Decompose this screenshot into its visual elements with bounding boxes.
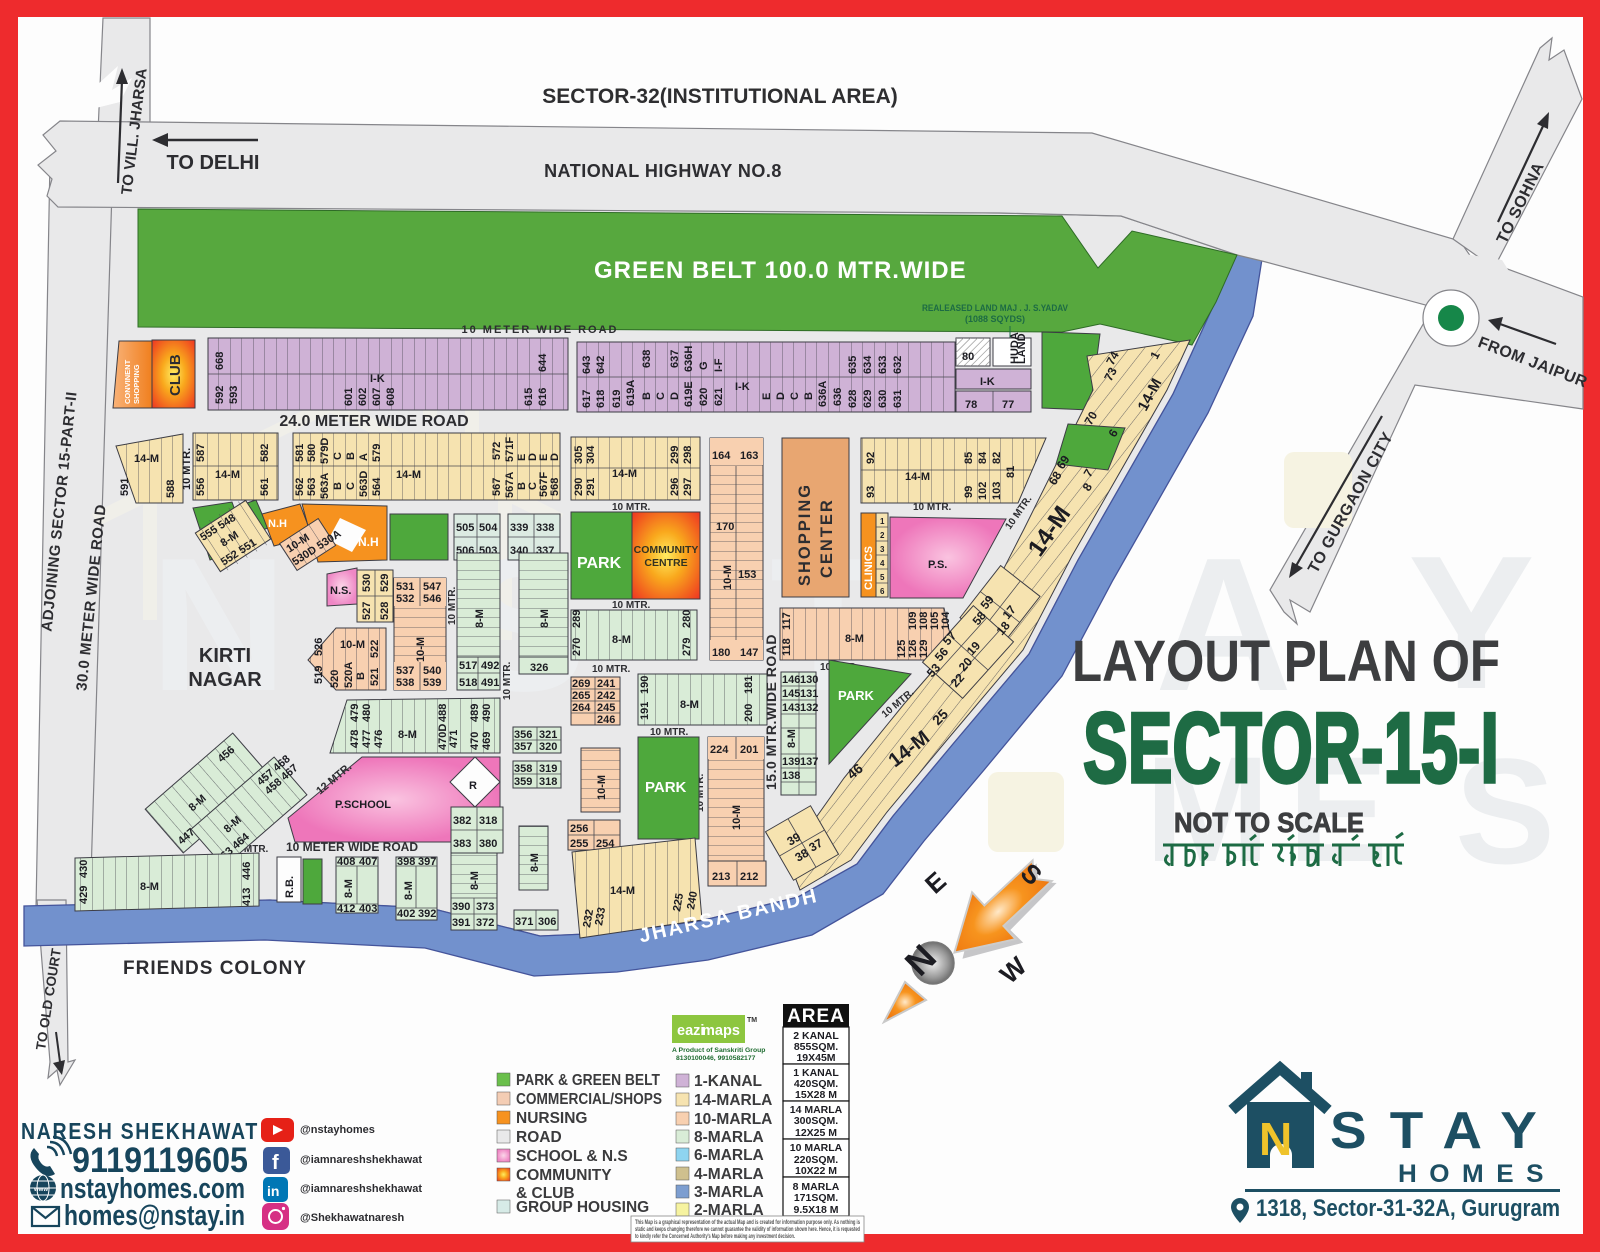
svg-text:8-M: 8-M (474, 609, 486, 628)
svg-text:1: 1 (880, 517, 885, 526)
svg-text:8-M: 8-M (786, 729, 798, 748)
svg-text:B: B (345, 452, 357, 460)
svg-text:339: 339 (510, 522, 528, 534)
svg-text:383: 383 (453, 838, 471, 850)
svg-text:479: 479 (349, 704, 361, 722)
svg-text:P.SCHOOL: P.SCHOOL (335, 799, 391, 811)
svg-text:8-M: 8-M (343, 879, 355, 898)
svg-text:269: 269 (572, 678, 590, 690)
svg-text:531: 531 (396, 581, 414, 593)
svg-text:256: 256 (570, 823, 588, 835)
svg-text:12X25 M: 12X25 M (795, 1127, 837, 1139)
svg-text:430: 430 (78, 860, 90, 878)
svg-text:619: 619 (611, 390, 623, 408)
svg-text:582: 582 (259, 444, 271, 462)
svg-text:8-M: 8-M (539, 609, 551, 628)
svg-text:491: 491 (481, 677, 499, 689)
svg-text:153: 153 (738, 569, 756, 581)
svg-text:77: 77 (1002, 399, 1014, 411)
svg-text:520: 520 (329, 670, 341, 688)
svg-text:14-MARLA: 14-MARLA (694, 1092, 772, 1109)
svg-text:380: 380 (479, 838, 497, 850)
svg-text:138: 138 (782, 770, 800, 782)
svg-text:4-MARLA: 4-MARLA (694, 1166, 764, 1183)
svg-text:593: 593 (228, 386, 240, 404)
svg-text:N: N (1259, 1113, 1292, 1165)
svg-text:505: 505 (456, 522, 474, 534)
svg-text:C: C (789, 392, 801, 400)
svg-text:homes@nstay.in: homes@nstay.in (64, 1200, 245, 1232)
svg-text:579: 579 (371, 444, 383, 462)
svg-text:78: 78 (965, 399, 977, 411)
svg-text:STAY: STAY (1330, 1102, 1560, 1160)
svg-text:GROUP HOUSING: GROUP HOUSING (516, 1199, 649, 1216)
svg-text:407: 407 (359, 856, 377, 868)
svg-text:279: 279 (681, 638, 693, 656)
svg-text:581: 581 (294, 444, 306, 462)
svg-text:in: in (267, 1183, 279, 1199)
svg-text:181: 181 (743, 676, 755, 694)
svg-text:CENTER: CENTER (818, 498, 836, 578)
svg-text:99: 99 (963, 486, 975, 498)
svg-text:LAYOUT PLAN OF: LAYOUT PLAN OF (1072, 629, 1500, 694)
svg-text:617: 617 (581, 390, 593, 408)
svg-text:C: C (655, 392, 667, 400)
svg-text:www: www (33, 1187, 48, 1193)
svg-text:14-M: 14-M (612, 468, 637, 480)
svg-text:402: 402 (397, 908, 415, 920)
svg-text:290: 290 (573, 478, 585, 496)
svg-text:563: 563 (306, 478, 318, 496)
svg-text:PARK: PARK (577, 555, 622, 572)
svg-text:519: 519 (313, 666, 325, 684)
svg-text:213: 213 (712, 871, 730, 883)
svg-text:488: 488 (437, 704, 449, 722)
svg-text:190: 190 (639, 676, 651, 694)
svg-text:10-M: 10-M (731, 805, 743, 830)
svg-text:527: 527 (361, 602, 373, 620)
svg-text:10 MTR.: 10 MTR. (181, 448, 193, 490)
svg-text:412: 412 (337, 903, 355, 915)
svg-text:139: 139 (782, 756, 800, 768)
svg-text:19X45M: 19X45M (796, 1052, 835, 1064)
svg-text:14-M: 14-M (396, 469, 421, 481)
svg-text:632: 632 (892, 356, 904, 374)
svg-text:587: 587 (195, 444, 207, 462)
svg-text:80: 80 (962, 351, 974, 363)
svg-text:616: 616 (537, 388, 549, 406)
svg-text:5: 5 (880, 573, 885, 582)
svg-text:191: 191 (639, 702, 651, 720)
svg-text:ROAD: ROAD (516, 1129, 562, 1146)
svg-text:@Shekhawatnaresh: @Shekhawatnaresh (300, 1212, 405, 1224)
svg-text:@iamnareshshekhawat: @iamnareshshekhawat (300, 1183, 422, 1195)
svg-text:615: 615 (523, 388, 535, 406)
svg-text:480: 480 (361, 704, 373, 722)
svg-text:D: D (669, 392, 681, 400)
svg-text:15.0 MTR.WIDE ROAD: 15.0 MTR.WIDE ROAD (763, 634, 779, 790)
svg-text:338: 338 (536, 522, 554, 534)
svg-text:359: 359 (514, 776, 532, 788)
svg-text:COMMUNITY: COMMUNITY (516, 1167, 612, 1184)
svg-text:N.H: N.H (358, 535, 379, 549)
svg-text:A: A (358, 453, 370, 461)
svg-text:568: 568 (549, 478, 561, 496)
svg-text:8130100046, 9910582177: 8130100046, 9910582177 (676, 1055, 756, 1062)
svg-text:326: 326 (530, 662, 548, 674)
svg-text:8-M: 8-M (398, 729, 417, 741)
svg-text:621: 621 (713, 388, 725, 406)
svg-text:COMMERCIAL/SHOPS: COMMERCIAL/SHOPS (516, 1091, 662, 1108)
svg-text:477: 477 (361, 730, 373, 748)
svg-text:299: 299 (669, 446, 681, 464)
svg-text:634: 634 (862, 355, 874, 374)
svg-text:10 MTR.: 10 MTR. (650, 727, 689, 738)
svg-text:TM: TM (747, 1017, 757, 1024)
svg-text:372: 372 (476, 917, 494, 929)
svg-text:255: 255 (570, 838, 588, 850)
svg-text:357: 357 (514, 741, 532, 753)
svg-text:118: 118 (781, 638, 793, 656)
svg-text:571F: 571F (504, 437, 516, 462)
svg-text:C: C (332, 452, 344, 460)
svg-text:SCHOOL & N.S: SCHOOL & N.S (516, 1148, 628, 1165)
svg-text:131: 131 (800, 688, 818, 700)
svg-text:SECTOR-32(INSTITUTIONAL AREA): SECTOR-32(INSTITUTIONAL AREA) (542, 85, 897, 108)
svg-text:629: 629 (862, 390, 874, 408)
svg-text:305: 305 (573, 446, 585, 464)
svg-text:397: 397 (418, 856, 436, 868)
svg-text:85: 85 (963, 452, 975, 464)
svg-text:I-F: I-F (713, 358, 725, 372)
svg-text:maps: maps (702, 1023, 740, 1039)
svg-text:371: 371 (515, 916, 533, 928)
svg-text:NURSING: NURSING (516, 1110, 587, 1127)
svg-text:164: 164 (712, 450, 731, 462)
svg-text:538: 538 (396, 677, 414, 689)
svg-text:B: B (355, 672, 367, 680)
svg-text:526: 526 (313, 638, 325, 656)
svg-text:373: 373 (476, 901, 494, 913)
svg-text:8-M: 8-M (680, 699, 699, 711)
svg-text:102: 102 (977, 482, 989, 500)
svg-text:224: 224 (710, 744, 729, 756)
svg-text:9.5X18 M: 9.5X18 M (794, 1204, 839, 1216)
svg-text:81: 81 (1005, 466, 1017, 478)
svg-text:PARK: PARK (645, 779, 687, 796)
svg-text:6: 6 (880, 587, 885, 596)
svg-text:572: 572 (491, 442, 503, 460)
svg-text:10X22 M: 10X22 M (795, 1165, 837, 1177)
svg-text:636A: 636A (817, 381, 829, 407)
svg-text:117: 117 (781, 612, 793, 630)
svg-text:561: 561 (259, 478, 271, 496)
svg-text:668: 668 (214, 352, 226, 370)
svg-text:132: 132 (800, 702, 818, 714)
svg-text:245: 245 (597, 702, 615, 714)
svg-text:6-MARLA: 6-MARLA (694, 1147, 764, 1164)
svg-text:630: 630 (877, 390, 889, 408)
svg-text:8-M: 8-M (529, 853, 541, 872)
svg-text:318: 318 (539, 776, 557, 788)
svg-text:10 METER WIDE ROAD: 10 METER WIDE ROAD (286, 840, 418, 854)
svg-text:522: 522 (369, 640, 381, 658)
svg-text:608: 608 (385, 388, 397, 406)
svg-text:10 MTR.: 10 MTR. (592, 664, 631, 675)
svg-text:546: 546 (423, 593, 441, 605)
svg-text:HOMES: HOMES (1398, 1160, 1556, 1188)
svg-text:382: 382 (453, 815, 471, 827)
svg-text:FRIENDS COLONY: FRIENDS COLONY (123, 958, 307, 979)
svg-text:588: 588 (165, 480, 177, 498)
svg-text:10-M: 10-M (415, 637, 427, 662)
svg-text:356: 356 (514, 729, 532, 741)
svg-text:518: 518 (459, 677, 477, 689)
svg-text:84: 84 (977, 451, 989, 464)
svg-text:246: 246 (597, 714, 615, 726)
svg-text:563D: 563D (358, 471, 370, 497)
svg-text:628: 628 (847, 390, 859, 408)
svg-text:1-KANAL: 1-KANAL (694, 1073, 762, 1090)
svg-text:618: 618 (595, 390, 607, 408)
svg-text:93: 93 (865, 486, 877, 498)
svg-text:B: B (641, 392, 653, 400)
svg-text:530: 530 (361, 574, 373, 592)
svg-text:15X28 M: 15X28 M (795, 1089, 837, 1101)
svg-text:(1088 SQYDS): (1088 SQYDS) (965, 314, 1025, 324)
svg-text:8-M: 8-M (845, 633, 864, 645)
svg-text:241: 241 (597, 678, 615, 690)
svg-text:296: 296 (669, 478, 681, 496)
svg-text:103: 103 (991, 482, 1003, 500)
svg-text:631: 631 (892, 390, 904, 408)
svg-text:14-M: 14-M (215, 469, 240, 481)
svg-text:static and keeps changing ther: static and keeps changing therefore we c… (635, 1227, 860, 1233)
svg-text:10 MTR.: 10 MTR. (502, 661, 513, 700)
svg-text:8-M: 8-M (140, 881, 159, 893)
svg-text:636H: 636H (683, 346, 695, 372)
svg-text:146: 146 (782, 674, 800, 686)
svg-text:320: 320 (539, 741, 557, 753)
svg-text:520A: 520A (343, 662, 355, 688)
svg-text:10 MTR.: 10 MTR. (612, 502, 651, 513)
svg-text:633: 633 (877, 356, 889, 374)
svg-text:300SQM.: 300SQM. (794, 1115, 838, 1127)
svg-text:489: 489 (469, 704, 481, 722)
svg-text:10 MTR.: 10 MTR. (447, 586, 458, 625)
svg-text:539: 539 (423, 677, 441, 689)
svg-text:10 MTR.: 10 MTR. (913, 502, 952, 513)
svg-text:14-M: 14-M (610, 885, 635, 897)
svg-text:1318, Sector-31-32A, Gurugram: 1318, Sector-31-32A, Gurugram (1256, 1195, 1560, 1222)
svg-text:490: 490 (481, 704, 493, 722)
svg-text:10-M: 10-M (722, 565, 734, 590)
svg-text:CLINICS: CLINICS (863, 546, 875, 590)
svg-text:607: 607 (371, 388, 383, 406)
svg-text:2: 2 (880, 531, 885, 540)
svg-text:C: C (345, 482, 357, 490)
svg-text:to kindly refer the Concerned: to kindly refer the Concerned Authority'… (635, 1234, 795, 1240)
svg-text:CLUB: CLUB (167, 354, 184, 396)
svg-text:PARK: PARK (838, 688, 874, 703)
svg-text:398: 398 (397, 856, 415, 868)
svg-text:567: 567 (491, 478, 503, 496)
svg-text:P.S.: P.S. (928, 559, 947, 571)
svg-text:635: 635 (847, 356, 859, 374)
svg-text:14-M: 14-M (134, 453, 159, 465)
svg-text:A Product of Sanskriti Group: A Product of Sanskriti Group (672, 1047, 765, 1054)
svg-text:10-M: 10-M (596, 775, 608, 800)
svg-text:321: 321 (539, 729, 557, 741)
svg-text:643: 643 (581, 356, 593, 374)
svg-text:171SQM.: 171SQM. (794, 1192, 838, 1204)
svg-text:10 MARLA: 10 MARLA (790, 1142, 843, 1154)
svg-text:3: 3 (880, 545, 885, 554)
svg-text:563A: 563A (319, 473, 331, 499)
svg-text:521: 521 (369, 668, 381, 686)
svg-text:478: 478 (349, 730, 361, 748)
svg-text:319: 319 (539, 763, 557, 775)
svg-text:280: 280 (681, 610, 693, 628)
svg-text:358: 358 (514, 763, 532, 775)
svg-text:619A: 619A (625, 380, 637, 406)
svg-text:10-M: 10-M (340, 639, 365, 651)
svg-text:602: 602 (357, 388, 369, 406)
svg-text:392: 392 (418, 908, 436, 920)
svg-text:567A: 567A (504, 472, 516, 498)
svg-text:638: 638 (641, 350, 653, 368)
svg-text:547: 547 (423, 581, 441, 593)
svg-text:636: 636 (832, 388, 844, 406)
svg-text:D: D (775, 392, 787, 400)
svg-text:E: E (761, 393, 773, 400)
svg-text:REALEASED LAND MAJ . J. S.YAD: REALEASED LAND MAJ . J. S.YADAV (922, 303, 1068, 313)
svg-text:10 METER WIDE ROAD: 10 METER WIDE ROAD (461, 324, 618, 336)
svg-text:eazi: eazi (677, 1023, 704, 1039)
svg-text:147: 147 (740, 647, 758, 659)
svg-text:289: 289 (571, 610, 583, 628)
svg-text:SHOPPING: SHOPPING (796, 483, 814, 586)
svg-text:318: 318 (479, 815, 497, 827)
svg-text:637: 637 (669, 350, 681, 368)
svg-text:SHOPPING: SHOPPING (132, 364, 141, 404)
svg-text:N.H: N.H (268, 518, 287, 530)
svg-text:601: 601 (343, 388, 355, 406)
svg-text:470: 470 (469, 732, 481, 750)
svg-text:504: 504 (479, 522, 498, 534)
svg-text:201: 201 (740, 744, 758, 756)
svg-text:@nstayhomes: @nstayhomes (300, 1124, 375, 1136)
svg-text:492: 492 (481, 660, 499, 672)
svg-text:298: 298 (682, 446, 694, 464)
svg-text:620: 620 (698, 388, 710, 406)
svg-text:B: B (332, 482, 344, 490)
svg-text:517: 517 (459, 660, 477, 672)
svg-text:D: D (549, 453, 561, 461)
svg-text:10 MTR.: 10 MTR. (612, 600, 651, 611)
svg-text:N.S.: N.S. (330, 585, 351, 597)
svg-text:163: 163 (740, 450, 758, 462)
svg-text:104: 104 (940, 611, 952, 630)
svg-text:642: 642 (595, 356, 607, 374)
svg-text:264: 264 (572, 702, 591, 714)
svg-text:3-MARLA: 3-MARLA (694, 1184, 764, 1201)
svg-text:AREA: AREA (787, 1006, 845, 1027)
svg-text:580: 580 (306, 444, 318, 462)
svg-text:B: B (803, 392, 815, 400)
svg-text:591: 591 (119, 478, 131, 496)
svg-text:644: 644 (537, 353, 549, 372)
svg-text:579D: 579D (319, 438, 331, 464)
svg-text:@iamnareshshekhawat: @iamnareshshekhawat (300, 1154, 422, 1166)
svg-text:92: 92 (865, 452, 877, 464)
svg-text:291: 291 (585, 478, 597, 496)
svg-text:476: 476 (373, 730, 385, 748)
svg-text:619E: 619E (683, 381, 695, 407)
svg-text:556: 556 (195, 478, 207, 496)
svg-text:143: 143 (782, 702, 800, 714)
svg-text:137: 137 (800, 756, 818, 768)
svg-text:200: 200 (743, 704, 755, 722)
svg-text:LAND: LAND (1016, 333, 1028, 364)
svg-text:I-K: I-K (980, 376, 995, 388)
svg-text:NAGAR: NAGAR (188, 669, 262, 691)
svg-text:82: 82 (991, 452, 1003, 464)
svg-text:429: 429 (78, 886, 90, 904)
svg-text:130: 130 (800, 674, 818, 686)
svg-text:528: 528 (379, 602, 391, 620)
svg-text:This Map is a graphical repres: This Map is a graphical representation o… (635, 1220, 860, 1226)
svg-text:390: 390 (452, 901, 470, 913)
svg-text:403: 403 (359, 903, 377, 915)
svg-text:471: 471 (448, 730, 460, 748)
svg-text:446: 446 (241, 862, 253, 880)
svg-text:14-M: 14-M (905, 471, 930, 483)
svg-text:8-M: 8-M (469, 871, 481, 890)
svg-text:CENTRE: CENTRE (644, 557, 687, 569)
svg-text:592: 592 (214, 386, 226, 404)
svg-text:TO DELHI: TO DELHI (167, 152, 260, 174)
svg-text:I-K: I-K (370, 373, 385, 385)
svg-text:537: 537 (396, 665, 414, 677)
svg-text:532: 532 (396, 593, 414, 605)
svg-text:145: 145 (782, 688, 800, 700)
svg-text:R.B.: R.B. (284, 876, 296, 898)
svg-text:4: 4 (880, 559, 885, 568)
svg-text:KIRTI: KIRTI (199, 645, 251, 667)
svg-text:24.0 METER WIDE ROAD: 24.0 METER WIDE ROAD (279, 413, 468, 430)
svg-text:408: 408 (337, 856, 355, 868)
svg-text:306: 306 (538, 916, 556, 928)
svg-text:265: 265 (572, 690, 590, 702)
svg-text:10-MARLA: 10-MARLA (694, 1111, 772, 1128)
svg-text:413: 413 (241, 888, 253, 906)
svg-text:NATIONAL HIGHWAY NO.8: NATIONAL HIGHWAY NO.8 (544, 161, 782, 181)
svg-text:562: 562 (294, 478, 306, 496)
svg-text:NOT TO SCALE: NOT TO SCALE (1174, 807, 1364, 838)
svg-text:COMMUNITY: COMMUNITY (634, 544, 699, 556)
svg-text:SECTOR-15-I: SECTOR-15-I (1083, 692, 1499, 803)
svg-text:564: 564 (371, 477, 383, 496)
svg-text:8-MARLA: 8-MARLA (694, 1129, 764, 1146)
svg-text:540: 540 (423, 665, 441, 677)
svg-text:R: R (469, 780, 477, 792)
svg-text:391: 391 (452, 917, 470, 929)
svg-text:297: 297 (682, 478, 694, 496)
svg-text:f: f (272, 1152, 279, 1174)
svg-text:529: 529 (379, 574, 391, 592)
svg-text:I-K: I-K (735, 381, 750, 393)
